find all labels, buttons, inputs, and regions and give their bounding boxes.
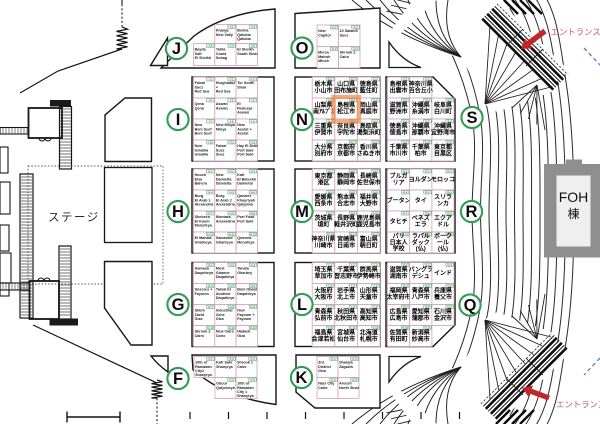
svg-text:日南市: 日南市 <box>337 242 355 250</box>
svg-text:N-2: N-2 <box>351 77 356 81</box>
svg-text:Q-2: Q-2 <box>425 263 430 267</box>
svg-text:伊賀市: 伊賀市 <box>313 129 332 137</box>
svg-text:L-2: L-2 <box>351 263 355 267</box>
svg-text:Aswan: Aswan <box>216 106 229 110</box>
svg-text:L-4: L-4 <box>328 284 332 288</box>
svg-text:J-4: J-4 <box>230 44 234 48</box>
svg-text:Q-4: Q-4 <box>403 284 408 288</box>
svg-text:R-2: R-2 <box>425 169 430 173</box>
svg-text:石川県: 石川県 <box>433 308 452 316</box>
svg-text:Sharqeya: Sharqeya <box>237 394 255 398</box>
svg-text:S-8: S-8 <box>448 119 453 123</box>
svg-text:Cairo: Cairo <box>195 334 205 338</box>
svg-text:S-9: S-9 <box>403 140 408 144</box>
svg-text:佐世保市: 佐世保市 <box>356 179 381 187</box>
svg-text:兵庫県: 兵庫県 <box>434 287 452 295</box>
svg-text:R-6: R-6 <box>447 190 452 194</box>
svg-text:滋賀県: 滋賀県 <box>390 101 408 109</box>
svg-text:三重県: 三重県 <box>314 122 332 130</box>
svg-text:川崎市: 川崎市 <box>313 242 332 250</box>
svg-text:松江市: 松江市 <box>337 108 355 116</box>
svg-text:I-5: I-5 <box>230 98 234 102</box>
svg-text:R-3: R-3 <box>447 169 452 173</box>
svg-text:S-1: S-1 <box>403 77 408 81</box>
svg-text:M: M <box>295 203 309 221</box>
svg-text:G: G <box>172 296 185 314</box>
svg-text:高知市: 高知市 <box>360 314 378 322</box>
svg-text:Hurghada2: Hurghada2 <box>216 81 235 85</box>
svg-text:N-1: N-1 <box>328 77 333 81</box>
svg-text:Sinai: Sinai <box>237 85 246 89</box>
svg-text:N-3: N-3 <box>373 77 378 81</box>
svg-text:Beni Suef: Beni Suef <box>195 131 213 135</box>
svg-text:静岡市: 静岡市 <box>337 179 355 187</box>
svg-text:草加市: 草加市 <box>314 272 332 280</box>
svg-text:S-7: S-7 <box>425 119 430 123</box>
svg-text:養父市: 養父市 <box>433 293 452 301</box>
svg-text:Q-7: Q-7 <box>403 305 408 309</box>
svg-text:Cairo: Cairo <box>216 334 226 338</box>
svg-text:福岡県: 福岡県 <box>389 287 408 295</box>
svg-text:M-6: M-6 <box>373 190 378 194</box>
svg-text:Cairo: Cairo <box>237 365 247 369</box>
svg-text:M-11: M-11 <box>350 232 356 236</box>
svg-text:R: R <box>466 203 478 221</box>
svg-text:沖縄県: 沖縄県 <box>412 101 430 109</box>
svg-text:J-3: J-3 <box>209 44 213 48</box>
svg-text:大野市: 大野市 <box>360 200 378 208</box>
svg-text:タヒチ: タヒチ <box>390 217 408 225</box>
svg-text:秋田県: 秋田県 <box>337 308 355 316</box>
svg-text:ンカ: ンカ <box>437 201 449 208</box>
svg-text:京都市: 京都市 <box>337 150 355 158</box>
svg-text:Red Sea: Red Sea <box>195 89 211 93</box>
svg-text:Daqahleya: Daqahleya <box>216 296 235 300</box>
svg-text:K-4: K-4 <box>353 378 358 382</box>
svg-text:千葉県: 千葉県 <box>412 143 430 151</box>
svg-text:神奈川県: 神奈川県 <box>311 235 335 243</box>
svg-text:静岡県: 静岡県 <box>337 172 355 180</box>
svg-text:(仏): (仏) <box>416 246 426 253</box>
svg-text:東京都: 東京都 <box>434 143 452 151</box>
svg-text:福島県: 福島県 <box>313 329 332 337</box>
svg-text:宇陀市: 宇陀市 <box>337 129 355 137</box>
svg-text:青森県: 青森県 <box>412 287 430 295</box>
svg-text:別府市: 別府市 <box>313 150 332 158</box>
svg-text:M-5: M-5 <box>351 190 356 194</box>
svg-text:藍住町: 藍住町 <box>360 87 378 95</box>
svg-text:宜野湾市: 宜野湾市 <box>431 129 455 137</box>
svg-text:L-6: L-6 <box>374 284 378 288</box>
svg-text:S-5: S-5 <box>448 98 453 102</box>
svg-text:広島県: 広島県 <box>390 308 408 316</box>
svg-text:R-8: R-8 <box>425 211 430 215</box>
svg-text:Cairo: Cairo <box>340 55 350 59</box>
svg-text:I: I <box>176 111 181 129</box>
svg-text:さぬき市: さぬき市 <box>357 150 381 158</box>
svg-text:弘前市: 弘前市 <box>314 314 332 322</box>
svg-text:境町: 境町 <box>317 221 329 229</box>
svg-text:Aswan: Aswan <box>237 110 250 114</box>
svg-text:エントランス: エントランス <box>556 400 600 410</box>
svg-text:京都府: 京都府 <box>337 143 355 151</box>
svg-text:O-3: O-3 <box>332 47 337 51</box>
svg-text:千葉県: 千葉県 <box>390 143 408 151</box>
svg-text:I-4: I-4 <box>209 98 213 102</box>
svg-text:Giza: Giza <box>216 317 225 321</box>
svg-text:O: O <box>296 40 309 58</box>
svg-text:Port Said: Port Said <box>237 152 254 156</box>
svg-text:北上市: 北上市 <box>337 293 355 301</box>
svg-text:金沢市: 金沢市 <box>433 314 452 322</box>
svg-text:K: K <box>296 369 308 387</box>
svg-text:ブータン: ブータン <box>387 196 411 204</box>
svg-text:棟: 棟 <box>567 206 579 221</box>
svg-text:西条市: 西条市 <box>314 200 332 208</box>
svg-text:田布施町: 田布施町 <box>334 87 358 95</box>
svg-text:M-12: M-12 <box>373 232 380 236</box>
svg-text:L-11: L-11 <box>350 326 356 330</box>
svg-text:愛知県: 愛知県 <box>412 308 430 316</box>
svg-text:K-2: K-2 <box>353 357 358 361</box>
svg-text:鹿児島県: 鹿児島県 <box>356 214 381 222</box>
svg-text:Qalubia: Qalubia <box>237 37 251 41</box>
svg-text:湖南市: 湖南市 <box>390 272 408 280</box>
svg-text:ドル: ドル <box>437 222 449 229</box>
svg-text:徳島市: 徳島市 <box>389 129 408 137</box>
svg-text:軽井沢町: 軽井沢町 <box>334 221 358 229</box>
svg-text:インド: インド <box>434 270 452 277</box>
svg-text:L-5: L-5 <box>351 284 355 288</box>
svg-text:大阪市: 大阪市 <box>314 293 332 301</box>
svg-text:Qalyubia: Qalyubia <box>237 202 254 206</box>
svg-text:東京都: 東京都 <box>314 172 332 180</box>
svg-text:M-4: M-4 <box>328 190 333 194</box>
svg-text:大阪府: 大阪府 <box>314 287 332 295</box>
svg-text:R-5: R-5 <box>425 190 430 194</box>
svg-text:神奈川県: 神奈川県 <box>409 80 433 88</box>
svg-text:伊勢崎市: 伊勢崎市 <box>356 272 381 280</box>
svg-text:Sohag: Sohag <box>216 56 227 60</box>
svg-text:S-11: S-11 <box>447 140 453 144</box>
svg-text:N-11: N-11 <box>350 140 356 144</box>
svg-text:R-1: R-1 <box>403 169 408 173</box>
svg-text:天童市: 天童市 <box>360 293 378 301</box>
svg-text:岡山県: 岡山県 <box>360 101 378 109</box>
svg-text:八戸市: 八戸市 <box>411 293 430 301</box>
svg-text:柏市: 柏市 <box>415 150 427 158</box>
svg-text:Cairo: Cairo <box>318 386 328 390</box>
svg-text:デシュ: デシュ <box>412 272 430 280</box>
svg-text:S-3: S-3 <box>403 98 408 102</box>
svg-text:L-7: L-7 <box>328 305 332 309</box>
svg-text:Sharqeya: Sharqeya <box>195 373 213 377</box>
svg-text:Gharbey: Gharbey <box>237 271 253 275</box>
svg-text:Q-3: Q-3 <box>447 263 452 267</box>
svg-text:(仏): (仏) <box>438 246 448 253</box>
svg-text:F-4: F-4 <box>230 378 235 382</box>
svg-text:L-12: L-12 <box>373 326 379 330</box>
svg-text:富山県: 富山県 <box>360 235 378 243</box>
svg-text:N: N <box>296 111 308 129</box>
svg-text:香川県: 香川県 <box>359 143 378 151</box>
svg-text:L: L <box>297 296 307 314</box>
svg-text:合志市: 合志市 <box>337 200 355 208</box>
svg-text:Q-6: Q-6 <box>447 284 452 288</box>
svg-text:バングラ: バングラ <box>409 266 433 274</box>
svg-text:ボーク: ボーク <box>434 232 452 240</box>
svg-text:栃木県: 栃木県 <box>314 80 332 88</box>
svg-text:北海道: 北海道 <box>360 329 378 337</box>
svg-text:百合丘小: 百合丘小 <box>409 87 433 95</box>
svg-text:白川町: 白川町 <box>434 108 452 116</box>
svg-text:モロッコ: モロッコ <box>431 176 455 183</box>
svg-text:H-6: H-6 <box>251 190 256 194</box>
svg-text:R-4: R-4 <box>403 190 408 194</box>
svg-text:Damietta: Damietta <box>237 181 254 185</box>
svg-text:ヨルダン: ヨルダン <box>409 175 433 183</box>
svg-text:N-6: N-6 <box>373 98 378 102</box>
svg-text:Daqahleya: Daqahleya <box>195 271 214 275</box>
svg-text:R-9: R-9 <box>447 211 452 215</box>
svg-text:青森県: 青森県 <box>314 308 332 316</box>
svg-text:North Sinai: North Sinai <box>339 386 359 390</box>
svg-text:タイ: タイ <box>415 196 427 204</box>
svg-text:Q-1: Q-1 <box>403 263 408 267</box>
svg-text:H: H <box>172 203 184 221</box>
svg-text:R-7: R-7 <box>403 211 408 215</box>
svg-text:小山市: 小山市 <box>313 87 332 95</box>
svg-text:Damietta: Damietta <box>216 181 233 185</box>
svg-text:埼玉県: 埼玉県 <box>314 266 332 274</box>
svg-text:Daqahleya: Daqahleya <box>237 292 256 296</box>
svg-text:F-5: F-5 <box>251 378 256 382</box>
svg-text:朝日町: 朝日町 <box>360 242 378 250</box>
svg-text:L-3: L-3 <box>374 263 378 267</box>
svg-text:Suez: Suez <box>340 33 349 37</box>
svg-text:M-8: M-8 <box>351 211 356 215</box>
svg-text:宮崎県: 宮崎県 <box>337 235 355 243</box>
svg-text:H-5: H-5 <box>230 190 235 194</box>
svg-text:G-3: G-3 <box>251 263 256 267</box>
svg-text:徳島県: 徳島県 <box>389 122 408 130</box>
svg-text:熊本県: 熊本県 <box>337 193 355 201</box>
svg-text:L-10: L-10 <box>328 326 334 330</box>
svg-text:Minya: Minya <box>216 127 227 131</box>
svg-text:佐賀県: 佐賀県 <box>389 329 408 337</box>
svg-text:那覇市: 那覇市 <box>412 129 430 137</box>
svg-text:S-4: S-4 <box>425 98 430 102</box>
svg-text:千葉県: 千葉県 <box>337 266 355 274</box>
svg-text:島根県: 島根県 <box>337 101 355 109</box>
svg-text:湯梨浜町: 湯梨浜町 <box>357 129 381 137</box>
svg-text:北秋田市: 北秋田市 <box>334 314 358 322</box>
svg-text:Q-5: Q-5 <box>425 284 430 288</box>
svg-text:パリ: パリ <box>393 232 405 240</box>
svg-text:日本人: 日本人 <box>390 238 409 246</box>
svg-text:I-1: I-1 <box>209 77 213 81</box>
svg-text:L-8: L-8 <box>351 305 355 309</box>
svg-text:Q-10: Q-10 <box>402 326 408 330</box>
svg-text:エラ: エラ <box>415 222 427 229</box>
svg-text:ステージ: ステージ <box>48 212 100 224</box>
svg-text:South Sinai: South Sinai <box>237 52 257 56</box>
svg-text:G-7: G-7 <box>208 305 213 309</box>
svg-text:山口県: 山口県 <box>337 80 355 88</box>
svg-text:鳥取県: 鳥取県 <box>360 122 378 130</box>
svg-text:市川市: 市川市 <box>390 150 408 158</box>
svg-text:沖縄県: 沖縄県 <box>434 122 452 130</box>
svg-text:G-12: G-12 <box>250 326 256 330</box>
svg-text:Monofeya: Monofeya <box>195 223 213 227</box>
svg-text:I-10: I-10 <box>208 140 213 144</box>
svg-text:Suez: Suez <box>216 152 225 156</box>
svg-text:G-2: G-2 <box>229 263 234 267</box>
svg-text:Alexandria: Alexandria <box>195 202 215 206</box>
svg-text:Minoh: Minoh <box>318 59 330 63</box>
svg-text:I-6: I-6 <box>251 98 255 102</box>
svg-text:F: F <box>173 370 183 388</box>
svg-text:M-9: M-9 <box>373 211 378 215</box>
svg-text:Assiut: Assiut <box>237 131 249 135</box>
svg-text:ブルガ: ブルガ <box>390 172 408 180</box>
svg-text:Giza: Giza <box>318 369 327 373</box>
svg-text:S-10: S-10 <box>425 140 431 144</box>
svg-text:Q-8: Q-8 <box>425 305 430 309</box>
svg-text:蒲郡市: 蒲郡市 <box>412 314 430 322</box>
svg-text:習志野市: 習志野市 <box>334 272 358 280</box>
svg-text:H-3: H-3 <box>251 169 256 173</box>
svg-text:Gharbeya: Gharbeya <box>195 240 213 244</box>
svg-text:H-1: H-1 <box>208 169 213 173</box>
svg-text:M-10: M-10 <box>327 232 334 236</box>
svg-text:I-9: I-9 <box>251 119 255 123</box>
svg-text:大分県: 大分県 <box>314 143 332 151</box>
svg-text:長崎県: 長崎県 <box>360 172 378 180</box>
svg-text:港区: 港区 <box>317 179 329 187</box>
svg-text:会津若松: 会津若松 <box>311 335 335 343</box>
svg-text:広島市: 広島市 <box>390 314 408 322</box>
svg-text:山形県: 山形県 <box>360 287 378 295</box>
svg-text:太宰府市: 太宰府市 <box>386 293 411 301</box>
svg-text:岐阜県: 岐阜県 <box>434 101 452 109</box>
svg-text:J-2: J-2 <box>251 25 255 29</box>
svg-text:G-9: G-9 <box>251 305 256 309</box>
svg-text:エクア: エクア <box>434 214 452 222</box>
svg-text:Capitol: Capitol <box>318 33 331 37</box>
svg-text:島根県: 島根県 <box>390 80 408 88</box>
svg-text:L-1: L-1 <box>328 263 332 267</box>
svg-text:I-11: I-11 <box>229 140 234 144</box>
svg-text:仙台市: 仙台市 <box>337 335 355 343</box>
svg-text:Qalyubeya: Qalyubeya <box>216 386 236 390</box>
svg-text:Giza: Giza <box>195 317 204 321</box>
svg-text:N-10: N-10 <box>327 140 333 144</box>
svg-text:有田町: 有田町 <box>390 335 408 343</box>
svg-text:長野県: 長野県 <box>337 214 355 222</box>
svg-text:F-1: F-1 <box>209 357 214 361</box>
svg-text:M-2: M-2 <box>351 169 356 173</box>
svg-text:群馬県: 群馬県 <box>359 266 378 274</box>
svg-text:ラバル: ラバル <box>412 232 430 240</box>
svg-text:Port Said: Port Said <box>237 219 254 223</box>
svg-text:H-2: H-2 <box>230 169 235 173</box>
svg-text:Zagazib: Zagazib <box>339 365 353 369</box>
svg-text:野洲市: 野洲市 <box>390 108 408 116</box>
svg-text:Q-11: Q-11 <box>425 326 431 330</box>
svg-text:糸満市: 糸満市 <box>412 108 430 116</box>
svg-text:Bahera: Bahera <box>195 181 208 185</box>
svg-text:愛媛県: 愛媛県 <box>314 193 332 201</box>
svg-text:Ismailia: Ismailia <box>195 152 209 156</box>
svg-text:K-1: K-1 <box>332 357 337 361</box>
svg-text:高知県: 高知県 <box>360 308 378 316</box>
svg-text:岩手県: 岩手県 <box>336 287 355 295</box>
svg-text:O-1: O-1 <box>332 25 337 29</box>
svg-text:ール: ール <box>437 239 449 246</box>
svg-text:リア: リア <box>393 180 405 187</box>
svg-text:沖縄県: 沖縄県 <box>412 122 430 130</box>
svg-text:FOH: FOH <box>559 189 589 205</box>
svg-text:福井県: 福井県 <box>359 193 378 201</box>
svg-text:出雲市: 出雲市 <box>390 87 408 95</box>
svg-text:目黒区: 目黒区 <box>434 150 452 158</box>
svg-text:New Vally: New Vally <box>216 33 234 37</box>
svg-text:I-7: I-7 <box>209 119 213 123</box>
svg-text:M-1: M-1 <box>328 169 333 173</box>
svg-text:エントランス: エントランス <box>551 27 600 37</box>
svg-text:妙高市: 妙高市 <box>412 335 430 343</box>
svg-text:S-2: S-2 <box>425 77 430 81</box>
svg-text:Monofeya: Monofeya <box>237 240 255 244</box>
svg-text:M-3: M-3 <box>373 169 378 173</box>
svg-text:N-12: N-12 <box>373 140 379 144</box>
svg-text:Red Sea: Red Sea <box>216 89 232 93</box>
svg-text:宮城県: 宮城県 <box>337 329 355 337</box>
svg-text:徳島県: 徳島県 <box>359 80 378 88</box>
svg-text:N-9: N-9 <box>373 119 378 123</box>
svg-text:Daqahleya: Daqahleya <box>216 275 235 279</box>
svg-text:Fayoum: Fayoum <box>195 292 210 296</box>
svg-text:ベネズ: ベネズ <box>412 214 430 222</box>
svg-text:Alexandria: Alexandria <box>216 219 236 223</box>
svg-text:ダック: ダック <box>412 238 430 246</box>
svg-text:札幌市: 札幌市 <box>359 335 378 343</box>
svg-text:新潟県: 新潟県 <box>412 329 430 337</box>
svg-text:山梨県: 山梨県 <box>314 101 332 109</box>
svg-text:鹿児島市: 鹿児島市 <box>356 221 381 229</box>
svg-text:Qena: Qena <box>195 106 205 110</box>
svg-text:滋賀県: 滋賀県 <box>390 266 408 274</box>
svg-text:Alexandria: Alexandria <box>216 202 236 206</box>
svg-text:Fayoum: Fayoum <box>237 317 252 321</box>
svg-text:J: J <box>172 40 181 58</box>
svg-text:Q-9: Q-9 <box>447 305 452 309</box>
svg-text:スリラ: スリラ <box>434 194 452 201</box>
svg-text:H-4: H-4 <box>208 190 213 194</box>
svg-text:Gharbeya: Gharbeya <box>216 240 234 244</box>
svg-text:S-6: S-6 <box>403 119 408 123</box>
svg-text:Q: Q <box>464 297 477 315</box>
svg-text:L-9: L-9 <box>374 305 378 309</box>
svg-text:学校: 学校 <box>393 245 406 253</box>
svg-text:M-7: M-7 <box>328 211 333 215</box>
svg-text:南ｱﾙﾌﾟｽ: 南ｱﾙﾌﾟｽ <box>313 108 334 116</box>
svg-text:真庭市: 真庭市 <box>360 108 378 116</box>
svg-text:Sharqeya: Sharqeya <box>216 365 234 369</box>
svg-text:Giza: Giza <box>237 334 246 338</box>
svg-text:S: S <box>466 109 477 127</box>
